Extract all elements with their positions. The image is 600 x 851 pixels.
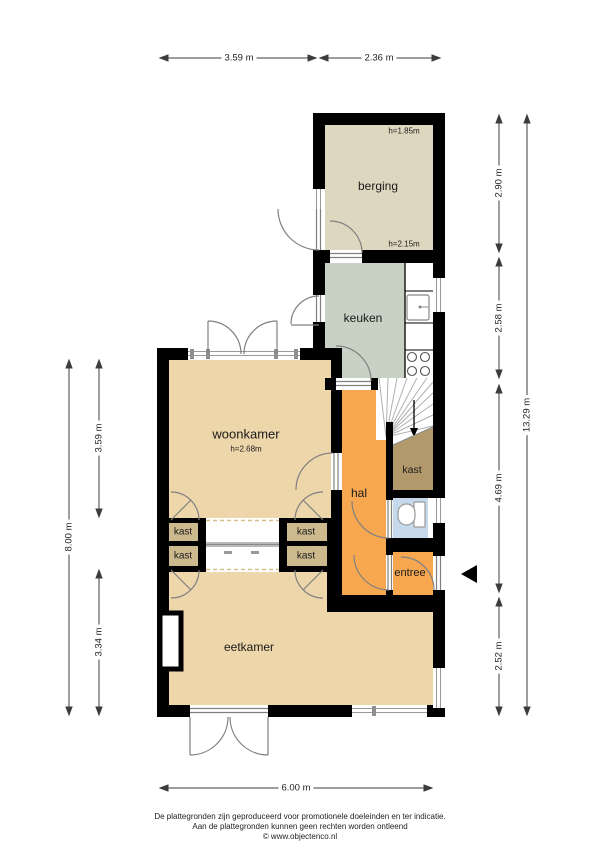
floorplan-drawing (0, 0, 600, 851)
dim-bottom: 6.00 m (278, 783, 313, 794)
disclaimer-line-2: Aan de plattegronden kunnen geen rechten… (0, 822, 600, 832)
disclaimer-line-1: De plattegronden zijn geproduceerd voor … (0, 812, 600, 822)
dim-left-inner-2: 3.34 m (94, 624, 105, 659)
toilet-icon (398, 502, 425, 527)
room-label-entree: entree (394, 567, 425, 579)
dim-top-right: 2.36 m (361, 53, 396, 64)
sink-icon (407, 295, 429, 320)
ceiling-height-berging-bottom: h=2.15m (388, 240, 419, 249)
passage-sliding-doors (206, 518, 279, 572)
dim-right-outer: 13.29 m (522, 395, 533, 435)
dim-top-left: 3.59 m (221, 53, 256, 64)
room-label-eetkamer: eetkamer (224, 640, 274, 654)
dim-right-inner-1: 2.90 m (494, 165, 505, 200)
room-label-hal: hal (351, 486, 367, 500)
dim-right-inner-2: 2.58 m (494, 300, 505, 335)
ceiling-height-berging-top: h=1.85m (388, 127, 419, 136)
entrance-marker-icon (461, 565, 477, 583)
room-label-woonkamer: woonkamer (212, 427, 279, 442)
copyright: © www.objectenco.nl (0, 832, 600, 842)
dim-right-inner-4: 2.52 m (494, 638, 505, 673)
room-label-kast-top-left: kast (174, 527, 192, 538)
room-label-kast-under-stairs: kast (402, 464, 421, 476)
dim-left-inner-1: 3.59 m (94, 420, 105, 455)
room-label-berging: berging (358, 179, 398, 193)
dim-right-inner-3: 4.69 m (494, 470, 505, 505)
page-subtitle: Begane Grond (0, 6, 300, 18)
room-label-keuken: keuken (344, 311, 383, 325)
dim-left-outer: 8.00 m (64, 519, 75, 554)
ceiling-height-woonkamer: h=2.68m (230, 445, 261, 454)
chimney (160, 613, 181, 669)
room-label-kast-bottom-right: kast (297, 551, 315, 562)
room-label-kast-top-right: kast (297, 527, 315, 538)
room-label-kast-bottom-left: kast (174, 551, 192, 562)
disclaimer: De plattegronden zijn geproduceerd voor … (0, 812, 600, 842)
floorplan-page: Van Hasseltstraat 36 - Kampen Begane Gro… (0, 0, 600, 851)
